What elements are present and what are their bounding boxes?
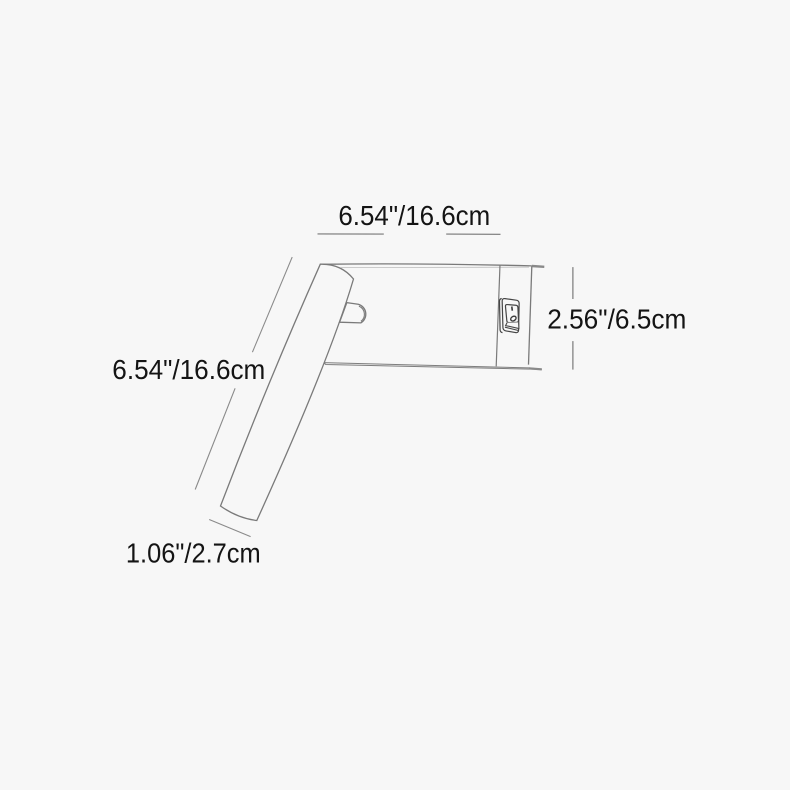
svg-text:2.56"/6.5cm: 2.56"/6.5cm <box>547 303 686 334</box>
svg-text:6.54"/16.6cm: 6.54"/16.6cm <box>112 354 265 385</box>
svg-text:1.06"/2.7cm: 1.06"/2.7cm <box>126 537 261 568</box>
svg-text:6.54"/16.6cm: 6.54"/16.6cm <box>338 200 490 231</box>
